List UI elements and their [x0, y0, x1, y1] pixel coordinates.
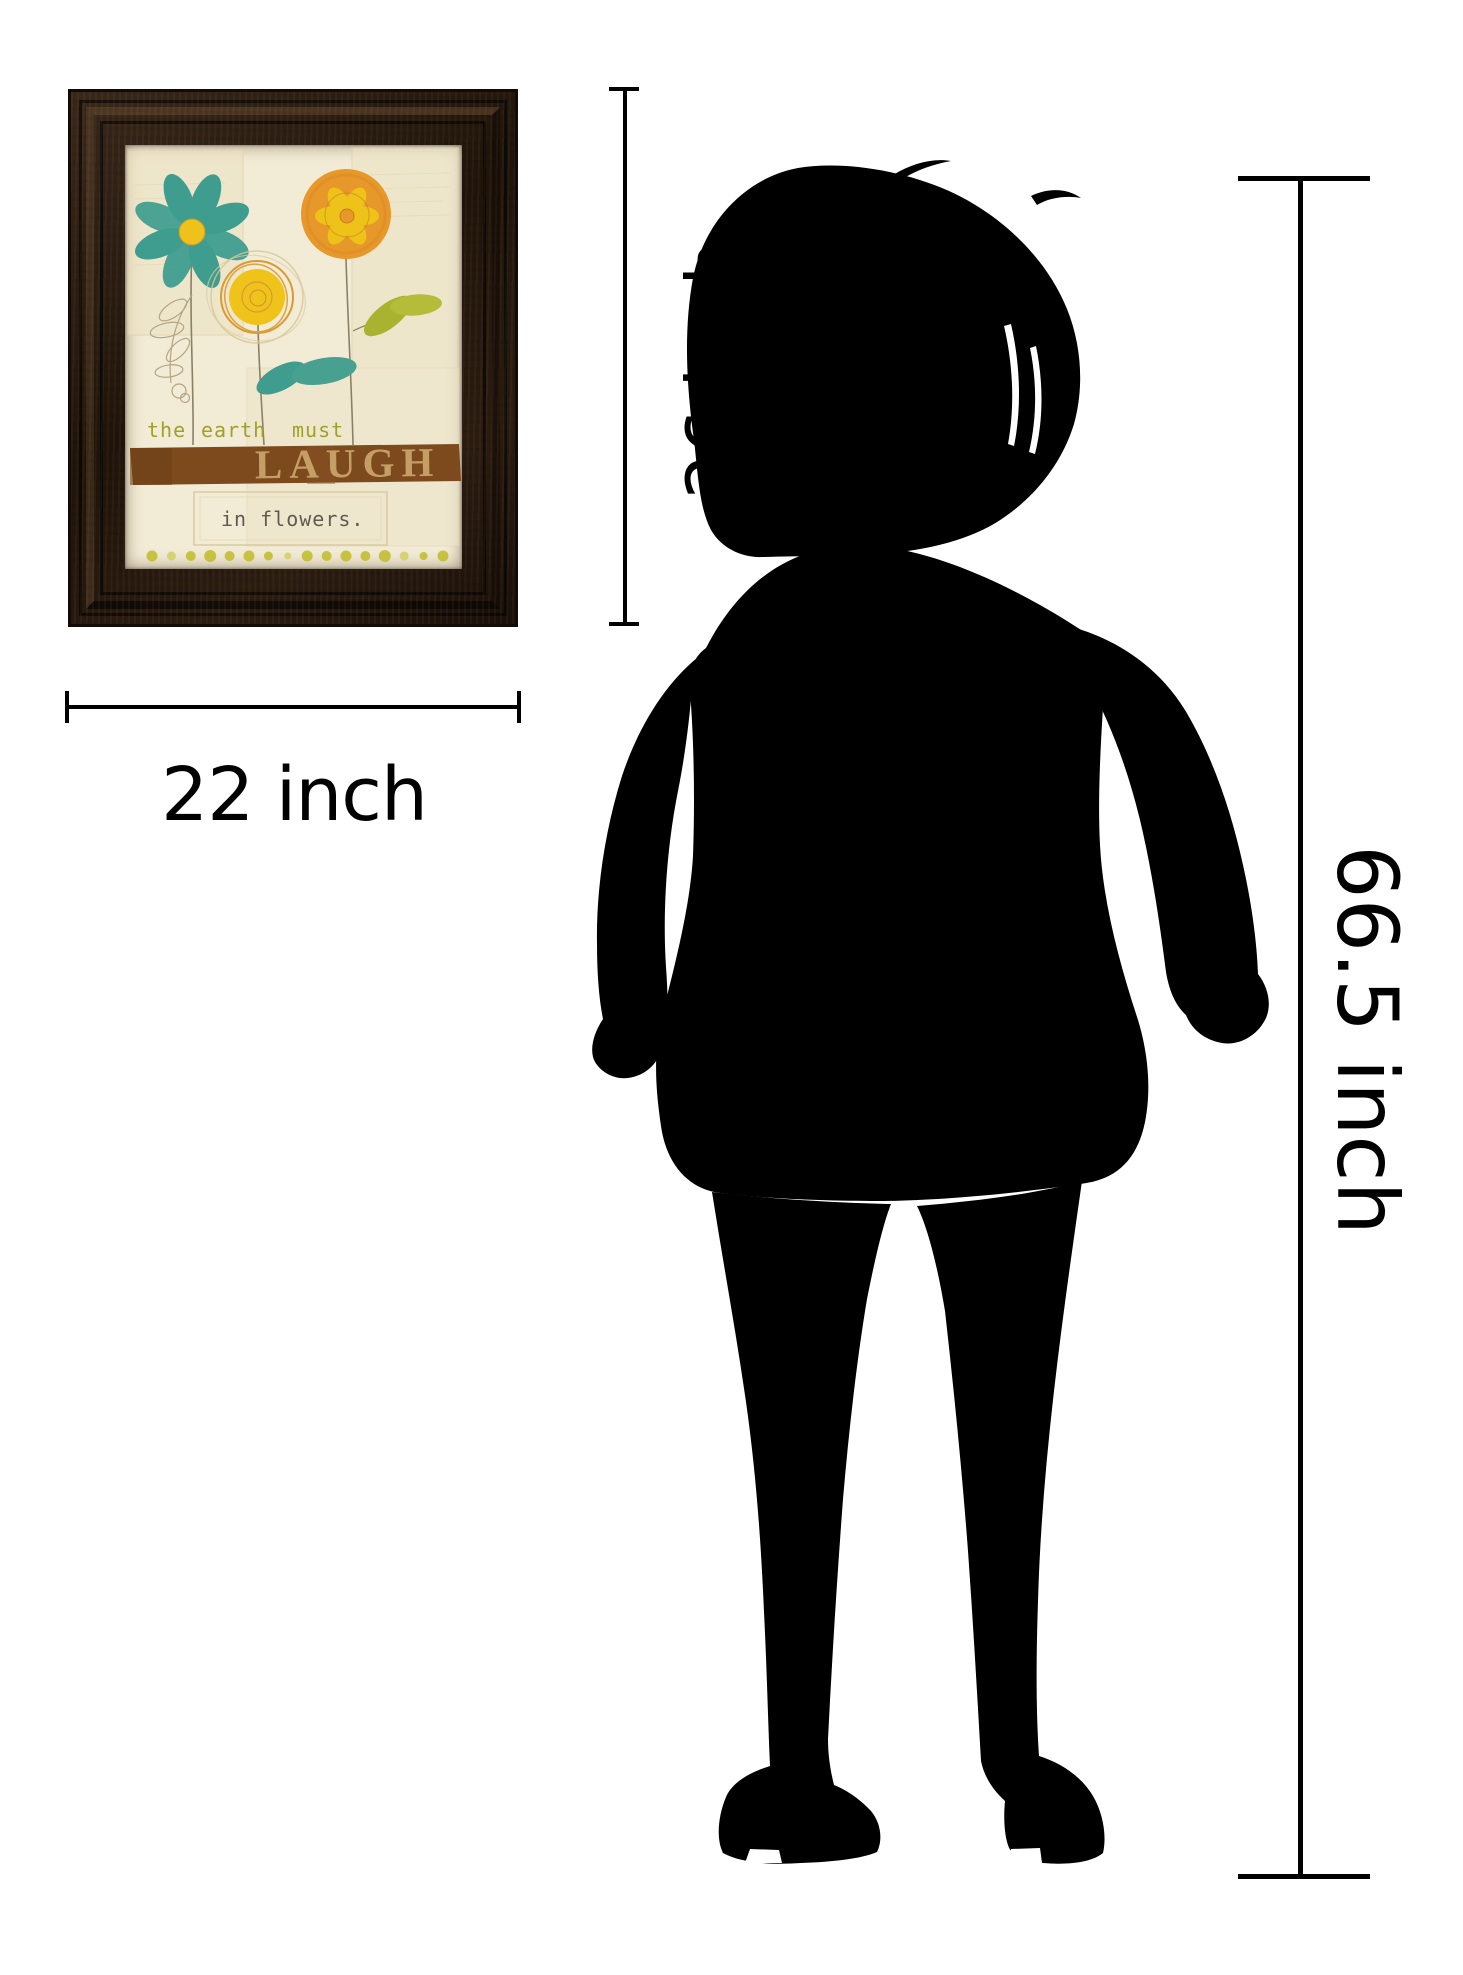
woman-silhouette — [0, 0, 1463, 1975]
silhouette-right-leg — [917, 1181, 1105, 1864]
silhouette-torso — [656, 545, 1148, 1201]
silhouette-head-hair — [687, 166, 1080, 558]
product-size-diagram: the earth must LAUGH in flowers. — [0, 0, 1463, 1975]
silhouette-left-leg — [712, 1192, 891, 1864]
